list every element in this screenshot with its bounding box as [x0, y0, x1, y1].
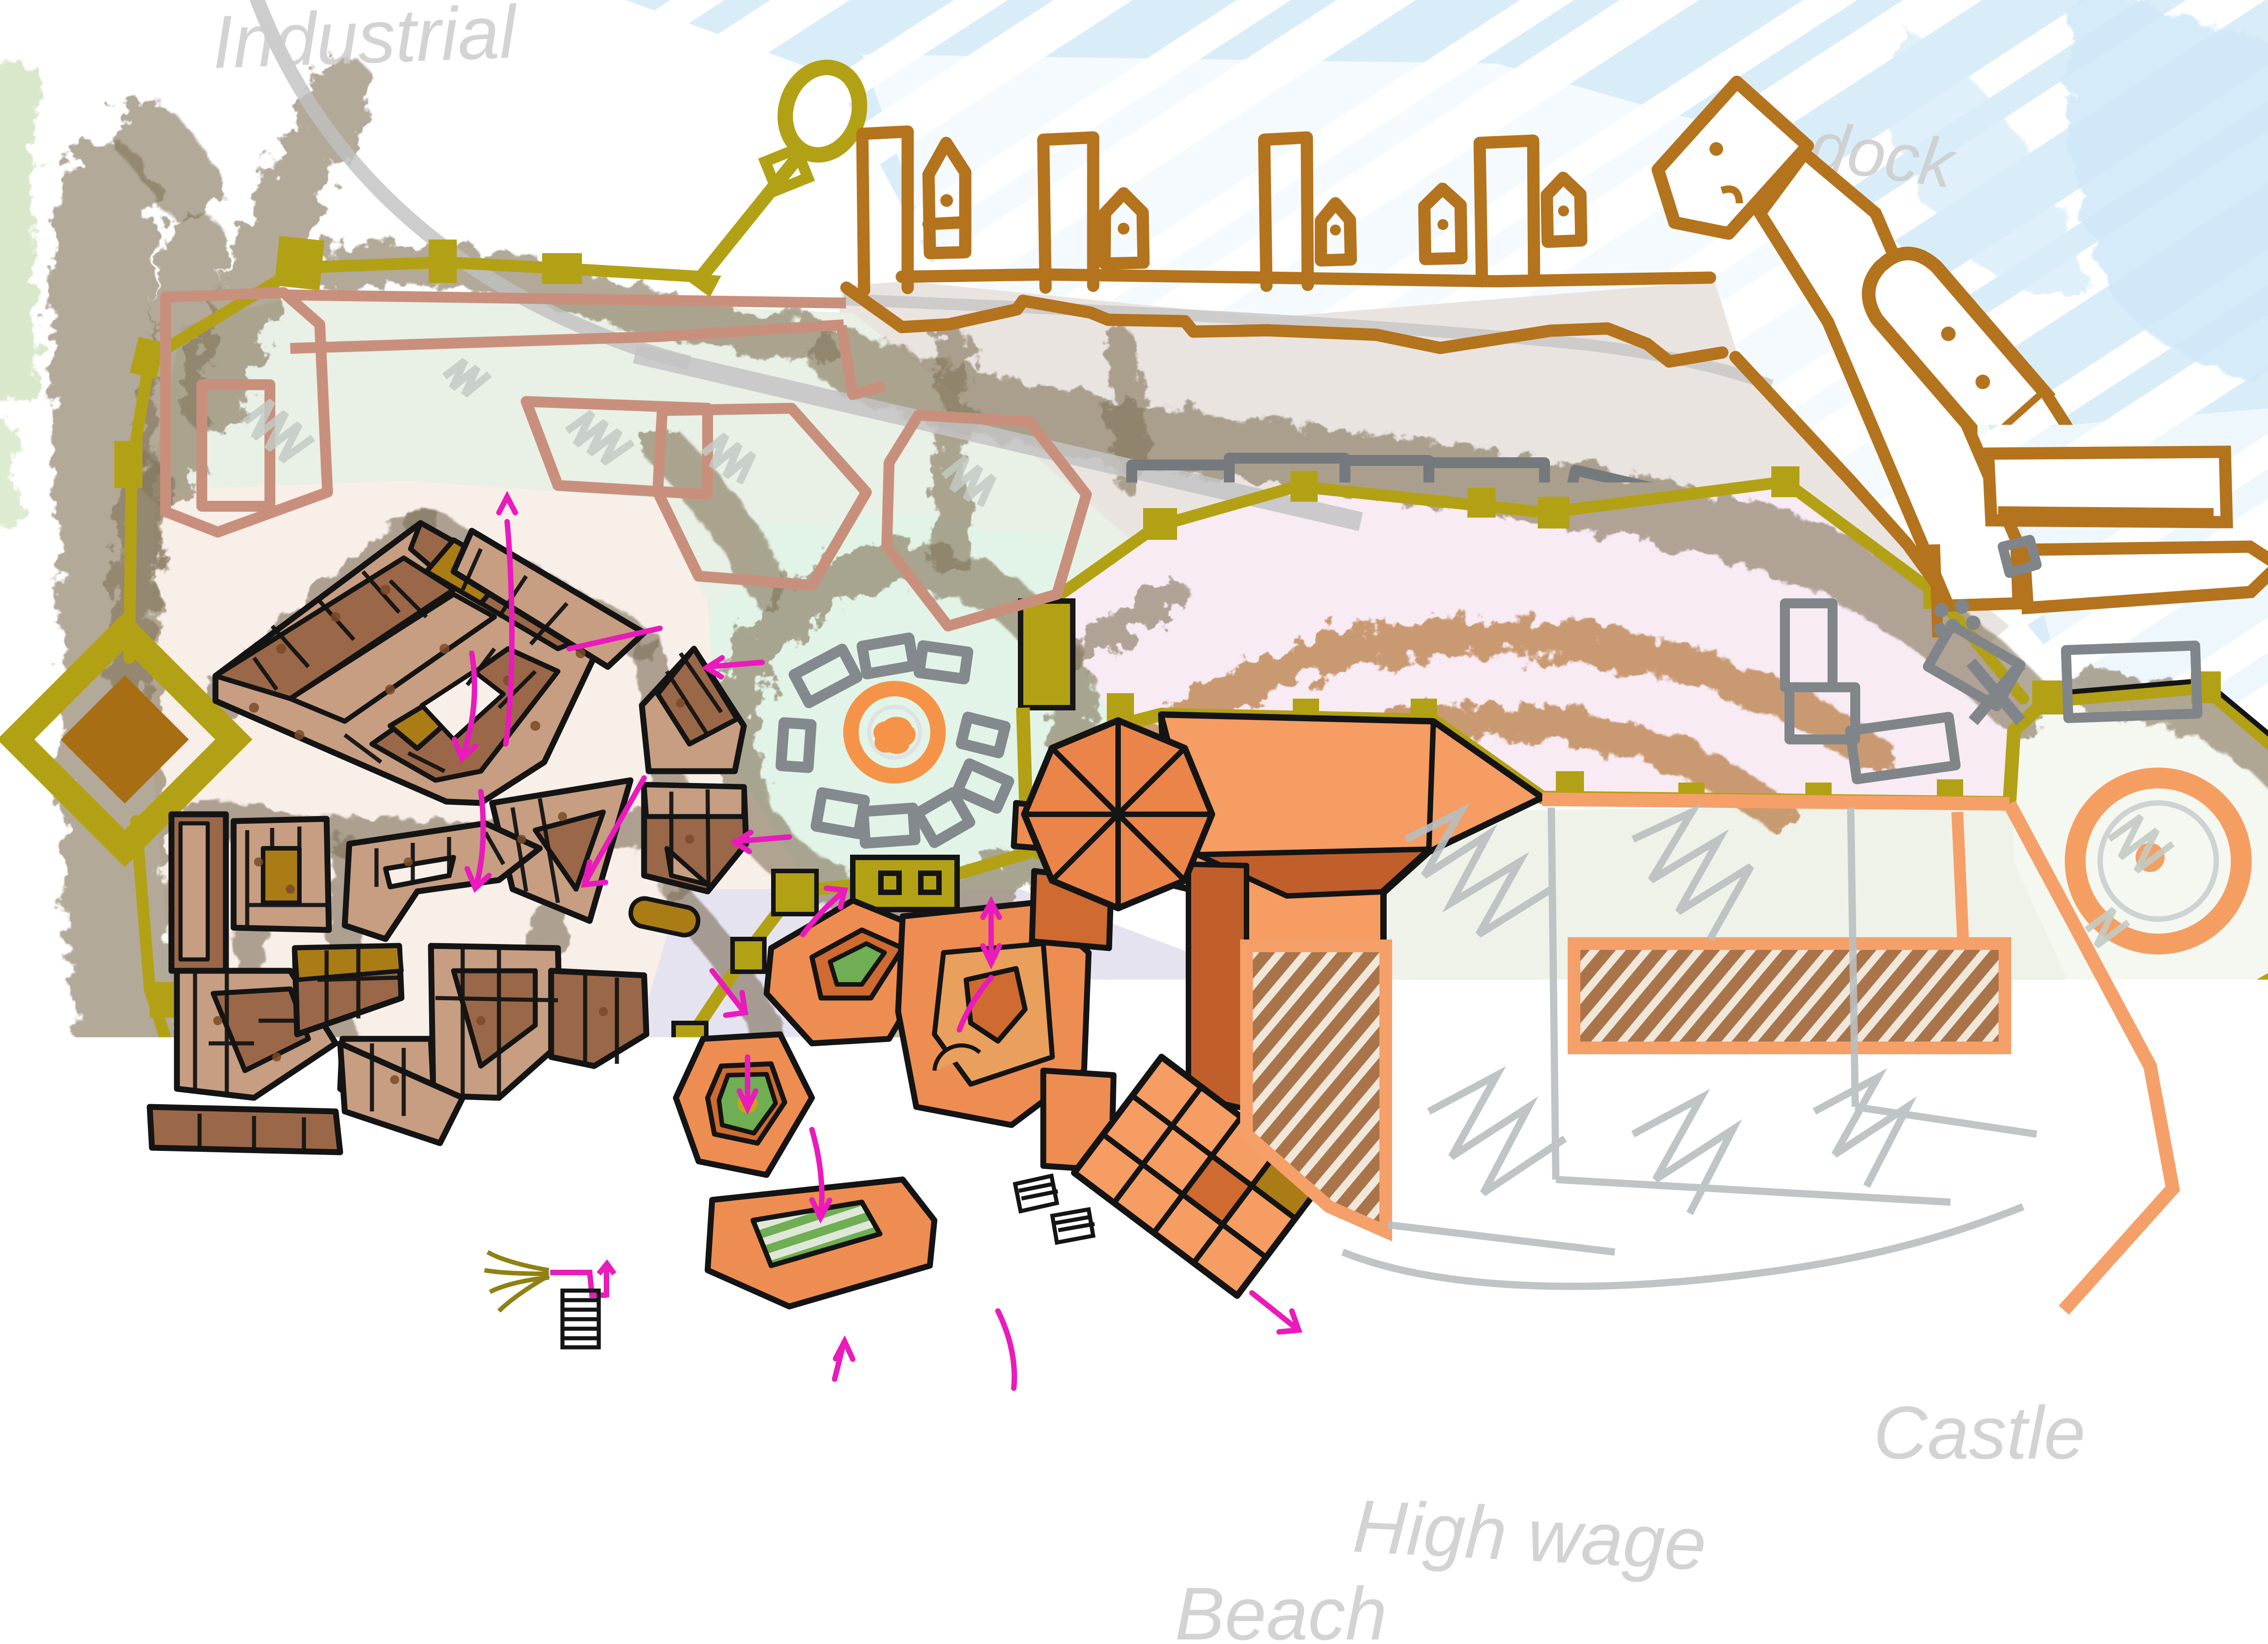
svg-text:Beach: Beach: [1175, 1572, 1387, 1644]
svg-text:Industrial: Industrial: [211, 0, 519, 84]
svg-text:Castle: Castle: [1873, 1391, 2086, 1474]
